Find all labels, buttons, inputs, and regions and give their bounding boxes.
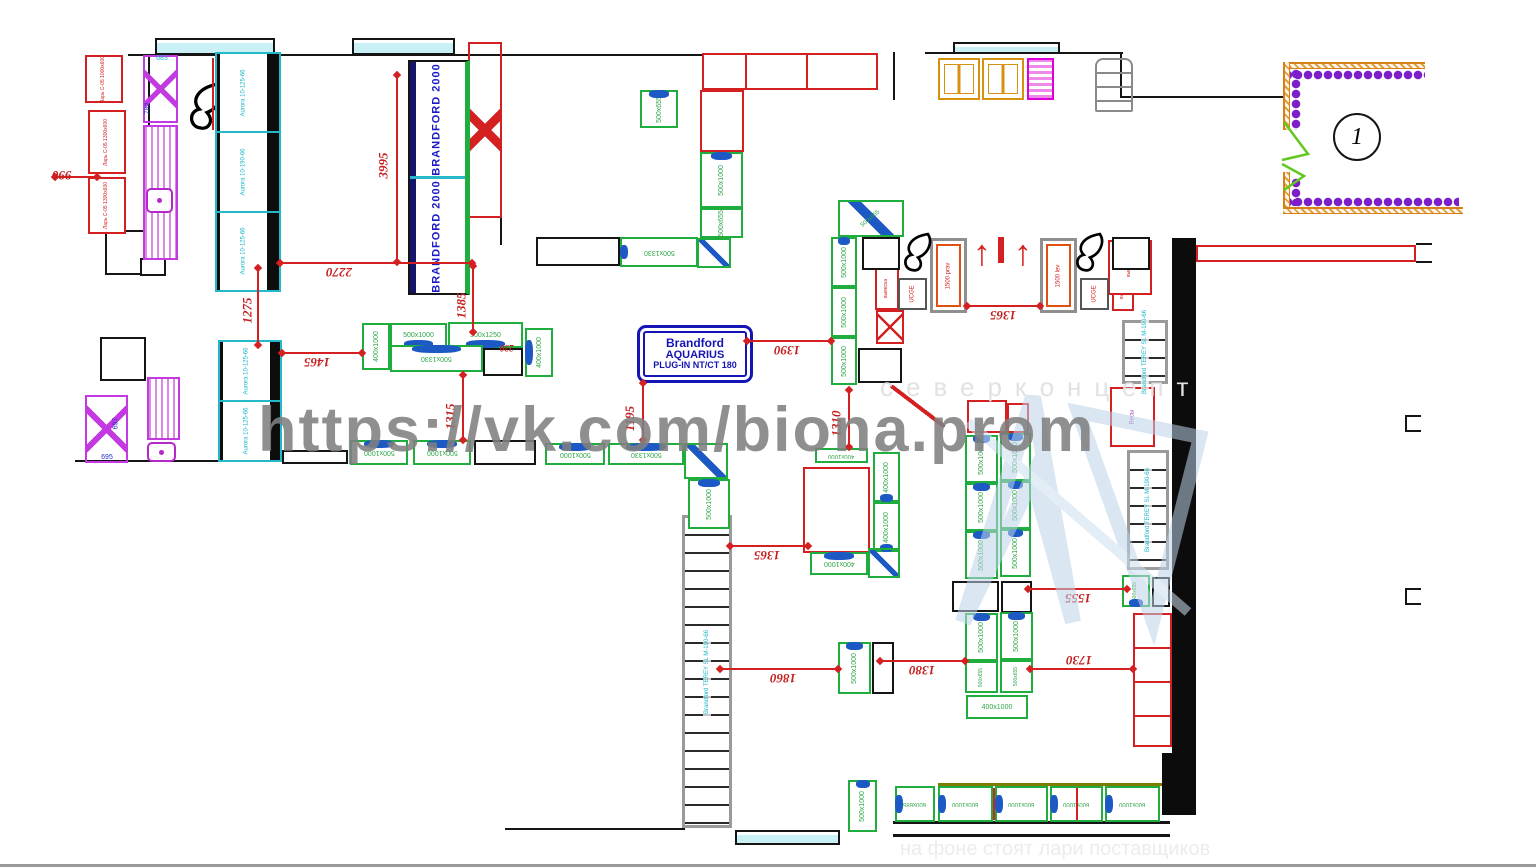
red-hatch-small [876, 310, 904, 344]
corner-unit: 500x555 [838, 200, 904, 237]
insulated-wall-orange [1283, 207, 1463, 214]
wall-mid [500, 215, 502, 245]
aurora-dark-strip [267, 133, 279, 210]
shelving-column: Brandford TEREY SL M-190-66 [682, 515, 732, 828]
equip-box: 500x1000 [838, 642, 871, 694]
label: UCGE [910, 285, 916, 302]
corner-unit [697, 238, 731, 268]
sign-box: вывеска [875, 267, 899, 310]
label: 400x1000 [373, 331, 380, 362]
dim-1730: 1730 [1056, 652, 1102, 668]
label: Ларь С-05 1300х600 [105, 118, 110, 165]
door-notch [824, 552, 854, 560]
entry-bar [998, 237, 1004, 263]
label: 500x1000 [718, 165, 725, 196]
equip-box: 400x1000 [525, 328, 553, 377]
aurora-dark-strip [267, 54, 279, 131]
window [352, 38, 455, 55]
floor-center [505, 828, 685, 830]
label: 600x685 [903, 801, 926, 807]
label-683: 683 [148, 53, 176, 63]
label: 683 [156, 55, 168, 62]
label: 400x1000 [883, 512, 890, 543]
black-box [536, 237, 620, 266]
magenta-unit [1027, 58, 1054, 100]
label: Aurora 10-125-66 [241, 69, 247, 116]
label: 500x1000 [705, 489, 712, 520]
dim-1275: 1275 [238, 283, 256, 338]
shelf-box: 600x1000 [995, 786, 1048, 822]
equip-box: 500x1000 [848, 780, 877, 832]
label: 1500 prav [946, 262, 952, 289]
shelf-box: 600x1000 [938, 786, 993, 822]
dim-990: 990 [42, 166, 82, 184]
sink-icon [147, 442, 176, 462]
red-counter-right [1196, 245, 1416, 262]
black-box [140, 258, 166, 276]
aurora-section: Aurora 10-125-66 [220, 342, 270, 400]
aquarius-brand: Brandford [666, 337, 724, 350]
red-shelf-line [1133, 715, 1172, 717]
label: 500x655 [1014, 667, 1019, 686]
red-tick [1076, 788, 1078, 820]
equip-box: 500x1000 [700, 152, 743, 208]
equip-box: 400x1000 [362, 323, 390, 370]
aurora-section: Aurora 10-125-66 [217, 213, 267, 290]
wall-top-far-right [1120, 96, 1285, 98]
label: 1730 [1066, 654, 1092, 667]
label: 1500 lev [1056, 264, 1062, 287]
equip-box: 500x1000 [831, 337, 857, 385]
red-shelf-line [1133, 647, 1172, 649]
red-hatch-tall [468, 42, 502, 218]
ucge-box: UCGE [1080, 278, 1109, 310]
black-box [100, 337, 146, 381]
label: 500x1000 [841, 346, 848, 377]
corner-unit [868, 548, 900, 578]
orange-cabinet [982, 58, 1024, 100]
door-swing-icon [1278, 120, 1320, 192]
door-notch [938, 795, 946, 813]
label: 230 [500, 343, 514, 352]
door-notch [1050, 795, 1058, 813]
aurora-section: Aurora 10-125-66 [217, 54, 267, 131]
red-tick [993, 788, 995, 820]
label: 500x1000 [859, 791, 866, 822]
equip-box: 500x1000 [831, 237, 857, 287]
red-divider [806, 53, 808, 90]
label: 1390 [774, 344, 800, 357]
door-notch [649, 90, 668, 98]
label-782: 782 [142, 95, 154, 121]
red-counter-row [702, 53, 878, 90]
equip-box: 500x655 [700, 208, 743, 238]
dim-1365b: 1365 [744, 547, 790, 563]
brandford-wall-case: BRANDFORD 2000BRANDFORD 2000 [408, 60, 470, 295]
orange-cabinet [938, 58, 980, 100]
label: 600x1000 [952, 801, 978, 807]
dim-line [257, 268, 259, 345]
red-divider [745, 53, 747, 90]
label: Aurora 10-190-66 [241, 148, 247, 195]
label: 500x1000 [403, 332, 434, 339]
dim-line [396, 75, 398, 262]
window [735, 830, 840, 845]
label: 500x655 [718, 210, 725, 237]
label-697: 697 [110, 408, 122, 438]
dim-line [1030, 668, 1133, 670]
aurora-section: Aurora 10-190-66 [217, 133, 267, 210]
door-notch [711, 152, 733, 160]
floor-plan-canvas: северконцепт Brandford AQUARIUS PLUG-IN … [0, 0, 1536, 867]
dim-1860: 1860 [760, 670, 806, 686]
label: вывеска [885, 279, 890, 298]
wall-bottom-b [893, 834, 1170, 837]
dim-3995: 3995 [374, 135, 392, 195]
label: 400x1000 [824, 560, 855, 567]
black-box [1112, 237, 1150, 270]
door-notch [846, 642, 862, 650]
label: 500x1330 [421, 355, 452, 362]
purple-stripe-unit [147, 377, 180, 440]
equip-box: 500x655 [965, 661, 998, 693]
dim-230: 230 [492, 340, 522, 354]
door-notch [880, 494, 893, 502]
label: 500x555 [860, 209, 881, 228]
equip-box: 500x1000 [688, 479, 730, 529]
equip-box: 500x1000 [831, 287, 857, 337]
label: 1860 [770, 672, 796, 685]
door-notch [698, 479, 719, 487]
equip-box: 400x1000 [873, 502, 900, 552]
sink-icon [146, 188, 173, 213]
dim-1465: 1465 [293, 354, 341, 370]
label: 400x1000 [982, 704, 1013, 711]
label: 1465 [304, 356, 330, 369]
label: 500x1000 [841, 297, 848, 328]
label: 990 [52, 169, 72, 182]
dim-2270: 2270 [315, 264, 363, 280]
red-edge [212, 58, 214, 130]
black-box [872, 642, 894, 694]
aurora-multideck: Aurora 10-125-66Aurora 10-190-66Aurora 1… [215, 52, 281, 292]
dim-1390: 1390 [764, 342, 810, 358]
label: 1365 [754, 549, 780, 562]
window [953, 42, 1060, 54]
freezer-chest: Ларь С-05 1300х600 [88, 110, 126, 174]
red-box-island [803, 467, 870, 553]
label: 500x1000 [851, 653, 858, 684]
aquarius-island-freezer: Brandford AQUARIUS PLUG-IN NT/CT 180 [637, 325, 753, 383]
dim-1365: 1365 [980, 307, 1026, 323]
label: 500x655 [655, 96, 662, 123]
label: BRANDFORD 2000 [432, 180, 443, 292]
label-695: 695 [92, 452, 122, 462]
label: Brandford TEREY SL M-190-66 [703, 628, 711, 716]
bracket [1416, 243, 1432, 263]
label: 1365 [990, 309, 1016, 322]
door-notch [525, 340, 533, 365]
equip-box: 500x1330 [620, 237, 698, 267]
label: 500x1000 [841, 247, 848, 278]
ucge-box: UCGE [898, 278, 927, 310]
label: 600x1000 [1008, 801, 1034, 807]
label: Ларь С-05 1000х600 [102, 55, 107, 102]
shelf-box: 600x685 [895, 786, 935, 822]
label: 400x1000 [883, 462, 890, 493]
label: 500x655 [979, 667, 984, 686]
aquarius-type: PLUG-IN NT/CT 180 [653, 361, 737, 370]
wall-step [893, 52, 895, 100]
door-notch [412, 345, 462, 353]
freezer-chest: Ларь С-05 1000х600 [85, 55, 123, 103]
label: 1275 [241, 298, 254, 324]
insulated-wall-orange [1283, 62, 1425, 69]
bottom-faint-note: на фоне стоят лари поставщиков [900, 838, 1210, 861]
equip-box: 400x1000 [966, 695, 1028, 719]
label: 782 [145, 102, 152, 114]
black-box [862, 237, 900, 270]
dim-1385: 1385 [452, 278, 470, 333]
label: 3995 [377, 152, 390, 178]
door-notch [995, 795, 1003, 813]
door-notch [856, 780, 870, 788]
red-box [700, 90, 744, 152]
freezer-chest: Ларь С-05 1300х600 [88, 177, 126, 234]
wall-right-block2 [1162, 753, 1196, 815]
label: 400x1000 [536, 337, 543, 368]
label: Aurora 10-125-66 [244, 347, 250, 394]
section-marker: 1 [1333, 113, 1381, 161]
entry-arrow-icon: ↑ [1016, 235, 1030, 279]
shelf-box: 600x1000 [1105, 786, 1160, 822]
equip-box: 500x1330 [390, 345, 483, 372]
door-notch [1105, 795, 1113, 813]
brandford-section: BRANDFORD 2000 [410, 179, 465, 293]
brandford-section: BRANDFORD 2000 [410, 62, 465, 179]
label: UCGE [1092, 285, 1098, 302]
label: Aurora 10-125-66 [244, 407, 250, 454]
door-notch [620, 245, 628, 260]
dim-line [472, 266, 474, 332]
label: 500x1330 [644, 249, 675, 256]
bracket [1405, 415, 1421, 432]
bracket [1405, 588, 1421, 605]
dim-line [280, 262, 472, 264]
label: 1380 [909, 664, 935, 677]
person-icon [1072, 228, 1108, 278]
equip-box: 500x655 [640, 90, 678, 128]
label: 2270 [326, 266, 352, 279]
label: BRANDFORD 2000 [432, 63, 443, 175]
insulated-wall-scallop [1283, 69, 1425, 80]
watermark-url: https://vk.com/biona.prom [258, 394, 1288, 466]
door-notch [838, 237, 850, 245]
label: 1385 [455, 293, 468, 319]
aurora-dark-strip [267, 213, 279, 290]
label: 697 [113, 417, 120, 429]
insulated-wall-scallop [1283, 196, 1459, 207]
label: 695 [101, 454, 113, 461]
equip-box: 400x1000 [810, 552, 868, 575]
dim-1380: 1380 [900, 662, 944, 678]
label: Aurora 10-125-66 [241, 228, 247, 275]
door-notch [895, 795, 903, 813]
entry-arrow-icon: ↑ [975, 235, 989, 279]
label: 600x1000 [1119, 801, 1145, 807]
person-icon [900, 228, 936, 278]
cart-icon [1095, 58, 1133, 112]
red-shelf-line [1133, 681, 1172, 683]
label: Ларь С-05 1300х600 [105, 182, 110, 229]
